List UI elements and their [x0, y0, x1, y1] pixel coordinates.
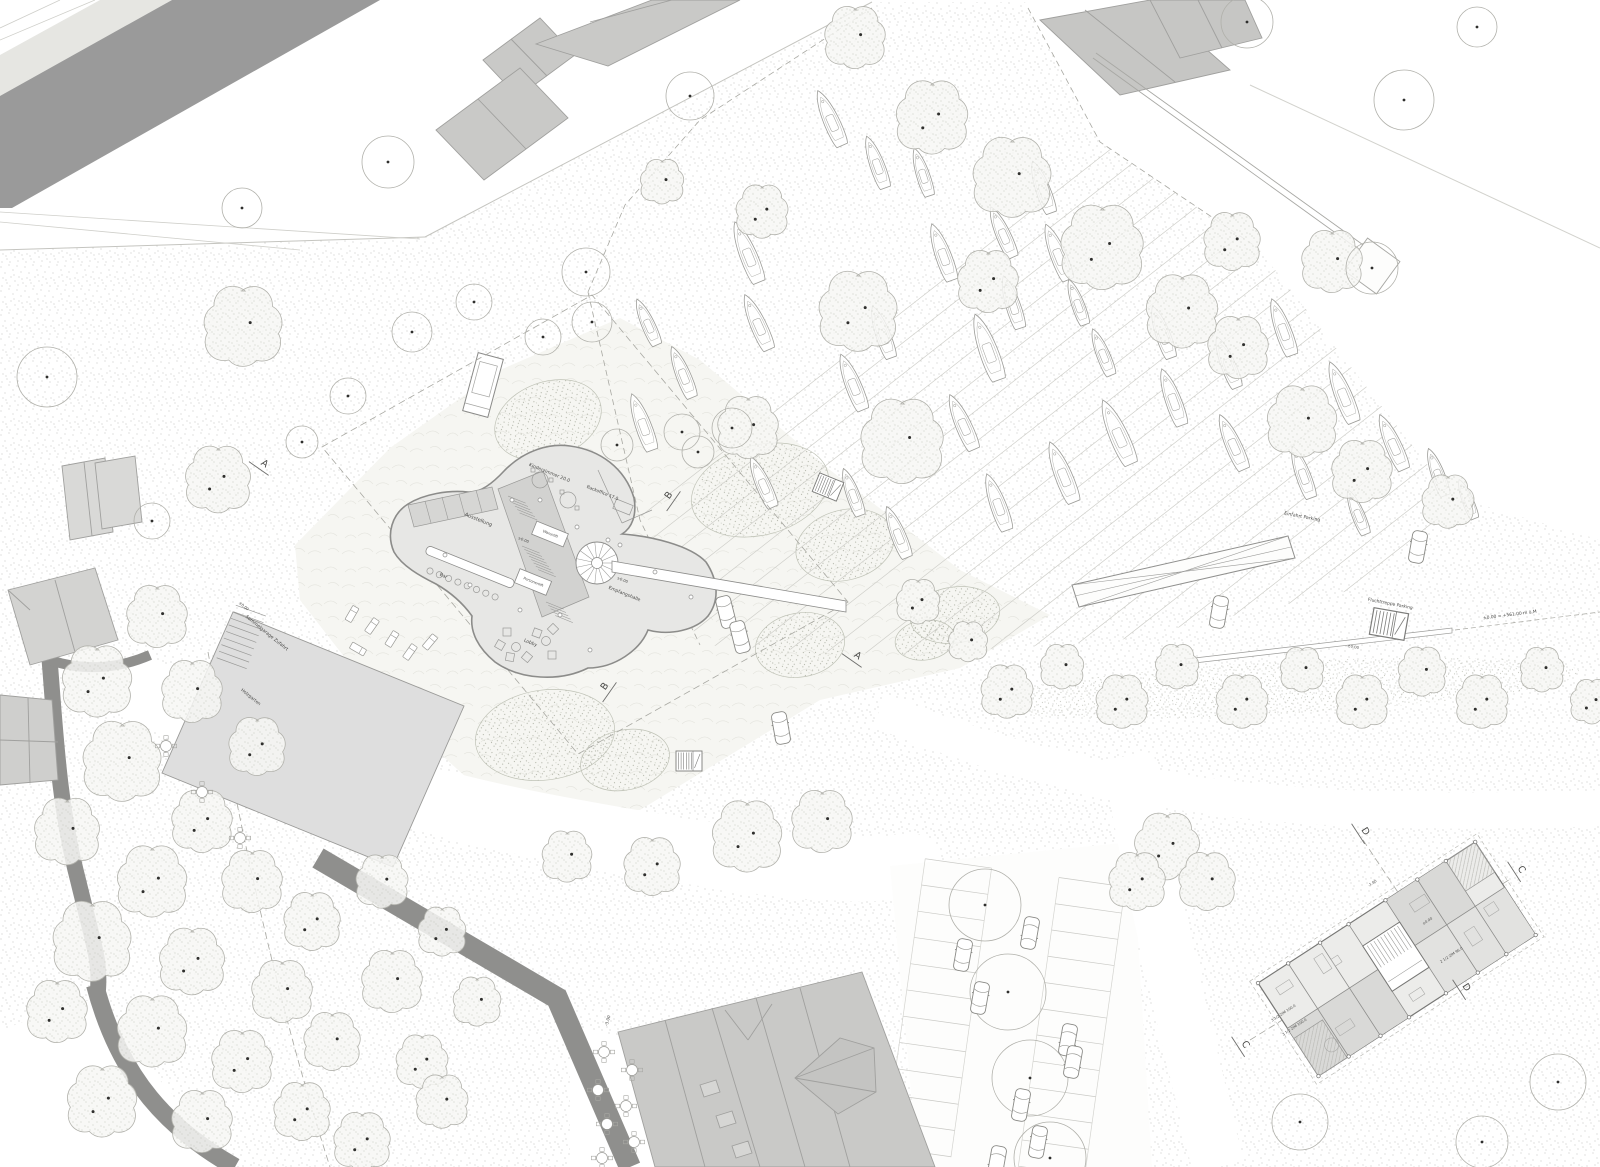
- tree-trunk-dot: [643, 873, 646, 876]
- tree-canopy: [981, 665, 1033, 718]
- tree-canopy: [949, 622, 988, 662]
- tree-trunk-dot: [102, 677, 105, 680]
- tree-trunk-dot: [182, 970, 185, 973]
- tree-trunk-dot: [385, 878, 388, 881]
- tree-canopy: [1155, 644, 1198, 689]
- tree-trunk-dot: [656, 862, 659, 865]
- tree-canopy: [1040, 644, 1083, 689]
- column: [575, 525, 579, 529]
- tree-trunk-dot: [1246, 21, 1249, 24]
- tree-trunk-dot: [752, 832, 755, 835]
- tree-trunk-dot: [301, 441, 304, 444]
- tree-canopy: [284, 892, 340, 950]
- tree-trunk-dot: [223, 475, 226, 478]
- tree-canopy: [973, 137, 1051, 217]
- tree-trunk-dot: [249, 321, 252, 324]
- tree-trunk-dot: [1065, 663, 1068, 666]
- tree-canopy: [160, 928, 225, 995]
- tree-trunk-dot: [1180, 663, 1183, 666]
- site-plan-svg: Kinderzimmer 20.0Backoffice 17.0Ausstell…: [0, 0, 1600, 1167]
- tree-canopy: [1204, 212, 1260, 270]
- tree-trunk-dot: [316, 917, 319, 920]
- tree-trunk-dot: [1229, 355, 1232, 358]
- tree-trunk-dot: [1474, 708, 1477, 711]
- tree-trunk-dot: [970, 638, 973, 641]
- tree-outline: [222, 188, 262, 228]
- tree-canopy: [819, 271, 897, 351]
- table-top: [235, 833, 246, 844]
- tree-trunk-dot: [999, 698, 1002, 701]
- tree-canopy: [1208, 316, 1268, 378]
- tree-trunk-dot: [754, 218, 757, 221]
- tree-canopy: [83, 721, 161, 801]
- tree-canopy: [1179, 852, 1235, 910]
- tree-trunk-dot: [261, 742, 264, 745]
- tree-trunk-dot: [1049, 1157, 1052, 1160]
- tree-trunk-dot: [411, 331, 414, 334]
- tree-trunk-dot: [353, 1148, 356, 1151]
- tree-trunk-dot: [1299, 1121, 1302, 1124]
- tree-trunk-dot: [752, 423, 755, 426]
- tree-trunk-dot: [1481, 1141, 1484, 1144]
- tree-trunk-dot: [142, 890, 145, 893]
- tree-canopy: [418, 907, 466, 956]
- building-southwest: [0, 695, 58, 785]
- tree-canopy: [736, 185, 788, 238]
- tree-trunk-dot: [366, 1137, 369, 1140]
- tree-canopy: [27, 980, 87, 1042]
- tree-canopy: [117, 996, 186, 1067]
- tree-trunk-dot: [98, 936, 101, 939]
- tree-canopy: [792, 790, 852, 852]
- tree-trunk-dot: [1557, 1081, 1560, 1084]
- tree-canopy: [204, 286, 282, 366]
- tree-trunk-dot: [1211, 877, 1214, 880]
- tree-trunk-dot: [434, 937, 437, 940]
- tree-canopy: [1109, 852, 1165, 910]
- tree-canopy: [356, 855, 408, 908]
- column: [689, 595, 693, 599]
- tree-trunk-dot: [1125, 698, 1128, 701]
- stair-icon: [676, 751, 702, 771]
- table-top: [602, 1119, 613, 1130]
- tree-trunk-dot: [92, 1110, 95, 1113]
- tree-trunk-dot: [921, 598, 924, 601]
- tree-canopy: [186, 446, 251, 513]
- tree-trunk-dot: [480, 998, 483, 1001]
- tree-trunk-dot: [542, 336, 545, 339]
- tree-canopy: [1061, 205, 1143, 290]
- tree-trunk-dot: [1305, 666, 1308, 669]
- tree-canopy: [958, 250, 1018, 312]
- tree-canopy: [172, 790, 232, 852]
- tree-canopy: [1096, 675, 1148, 728]
- tree-trunk-dot: [984, 904, 987, 907]
- tree-trunk-dot: [248, 753, 251, 756]
- tree-trunk-dot: [1114, 708, 1117, 711]
- tree-canopy: [53, 901, 131, 981]
- column: [606, 538, 610, 542]
- tree-trunk-dot: [425, 1058, 428, 1061]
- column: [510, 498, 514, 502]
- tree-trunk-dot: [859, 33, 862, 36]
- tree-trunk-dot: [1545, 666, 1548, 669]
- spiral-core: [592, 558, 603, 569]
- tree-trunk-dot: [731, 427, 734, 430]
- tree-trunk-dot: [233, 1069, 236, 1072]
- tree-canopy: [1398, 647, 1446, 696]
- tree-trunk-dot: [157, 1027, 160, 1030]
- tree-canopy: [1336, 675, 1388, 728]
- tree-trunk-dot: [387, 161, 390, 164]
- tree-trunk-dot: [1242, 343, 1245, 346]
- tree-trunk-dot: [246, 1057, 249, 1060]
- column: [538, 498, 542, 502]
- tree-trunk-dot: [1595, 698, 1598, 701]
- tree-canopy: [1267, 386, 1336, 457]
- tree-trunk-dot: [681, 431, 684, 434]
- tree-canopy: [229, 717, 285, 775]
- tree-trunk-dot: [1090, 258, 1093, 261]
- tree-trunk-dot: [908, 436, 911, 439]
- tree-trunk-dot: [157, 877, 160, 880]
- tree-trunk-dot: [665, 178, 668, 181]
- tree-trunk-dot: [1476, 26, 1479, 29]
- tree-trunk-dot: [396, 977, 399, 980]
- tree-trunk-dot: [1485, 698, 1488, 701]
- tree-trunk-dot: [846, 321, 849, 324]
- tree-canopy: [1422, 475, 1474, 528]
- table-top: [627, 1065, 638, 1076]
- tree-trunk-dot: [585, 271, 588, 274]
- tree-trunk-dot: [826, 817, 829, 820]
- tree-trunk-dot: [979, 289, 982, 292]
- tree-trunk-dot: [473, 301, 476, 304]
- tree-trunk-dot: [206, 817, 209, 820]
- tree-trunk-dot: [1029, 1077, 1032, 1080]
- tree-canopy: [1456, 675, 1508, 728]
- tree-trunk-dot: [689, 95, 692, 98]
- tree-canopy: [334, 1112, 390, 1167]
- table-top: [629, 1137, 640, 1148]
- tree-trunk-dot: [196, 687, 199, 690]
- tree-trunk-dot: [1157, 855, 1160, 858]
- tree-trunk-dot: [1365, 698, 1368, 701]
- tree-canopy: [162, 660, 222, 722]
- tree-trunk-dot: [72, 827, 75, 830]
- tree-trunk-dot: [46, 376, 49, 379]
- tree-trunk-dot: [1307, 417, 1310, 420]
- tree-canopy: [896, 81, 967, 154]
- tree-trunk-dot: [48, 1019, 51, 1022]
- tree-canopy: [1302, 230, 1362, 292]
- table-top: [593, 1085, 604, 1096]
- tree-canopy: [1216, 675, 1268, 728]
- tree-trunk-dot: [1336, 257, 1339, 260]
- tree-trunk-dot: [1234, 708, 1237, 711]
- tree-trunk-dot: [414, 1068, 417, 1071]
- tree-trunk-dot: [1371, 267, 1374, 270]
- tree-trunk-dot: [1018, 172, 1021, 175]
- tree-canopy: [222, 850, 282, 912]
- table-top: [621, 1101, 632, 1112]
- tree-trunk-dot: [921, 126, 924, 129]
- tree-trunk-dot: [241, 207, 244, 210]
- tree-trunk-dot: [193, 829, 196, 832]
- tree-trunk-dot: [107, 1097, 110, 1100]
- tree-canopy: [712, 801, 781, 872]
- tree-trunk-dot: [445, 1098, 448, 1101]
- tree-trunk-dot: [1010, 688, 1013, 691]
- table-top: [599, 1047, 610, 1058]
- tree-trunk-dot: [1236, 237, 1239, 240]
- tree-trunk-dot: [306, 1107, 309, 1110]
- tree-trunk-dot: [197, 957, 200, 960]
- tree-trunk-dot: [1223, 248, 1226, 251]
- tree-trunk-dot: [208, 488, 211, 491]
- tree-canopy: [172, 1090, 232, 1152]
- tree-canopy: [252, 960, 312, 1022]
- tree-trunk-dot: [87, 690, 90, 693]
- tree-trunk-dot: [937, 113, 940, 116]
- table-top: [197, 787, 208, 798]
- tree-trunk-dot: [128, 756, 131, 759]
- column: [588, 648, 592, 652]
- column: [443, 553, 447, 557]
- tree-trunk-dot: [303, 928, 306, 931]
- tree-canopy: [416, 1075, 468, 1128]
- tree-trunk-dot: [992, 277, 995, 280]
- tree-trunk-dot: [591, 321, 594, 324]
- tree-trunk-dot: [293, 1118, 296, 1121]
- tree-canopy: [1520, 647, 1563, 692]
- tree-canopy: [212, 1030, 272, 1092]
- tree-trunk-dot: [737, 845, 740, 848]
- tree-trunk-dot: [61, 1007, 64, 1010]
- tree-outline: [362, 136, 414, 188]
- tree-canopy: [274, 1082, 330, 1140]
- site-plan-canvas: Kinderzimmer 20.0Backoffice 17.0Ausstell…: [0, 0, 1600, 1167]
- tree-trunk-dot: [1353, 479, 1356, 482]
- tree-trunk-dot: [286, 987, 289, 990]
- tree-trunk-dot: [256, 877, 259, 880]
- column: [468, 583, 472, 587]
- tree-trunk-dot: [697, 451, 700, 454]
- tree-trunk-dot: [1354, 708, 1357, 711]
- tree-canopy: [640, 159, 683, 204]
- table-top: [161, 741, 172, 752]
- tree-trunk-dot: [1007, 991, 1010, 994]
- tree-canopy: [35, 798, 100, 865]
- tree-canopy: [1280, 647, 1323, 692]
- tree-trunk-dot: [1425, 668, 1428, 671]
- tree-trunk-dot: [765, 208, 768, 211]
- tree-trunk-dot: [336, 1037, 339, 1040]
- tree-canopy: [362, 950, 422, 1012]
- tree-canopy: [624, 837, 680, 895]
- tree-trunk-dot: [1108, 242, 1111, 245]
- tree-canopy: [825, 6, 885, 68]
- tree-trunk-dot: [347, 395, 350, 398]
- tree-trunk-dot: [1451, 498, 1454, 501]
- tree-canopy: [453, 977, 501, 1026]
- column: [653, 570, 657, 574]
- tree-trunk-dot: [1366, 467, 1369, 470]
- column: [518, 608, 522, 612]
- tree-trunk-dot: [570, 853, 573, 856]
- tree-canopy: [718, 396, 778, 458]
- stair-icon: [1369, 608, 1408, 641]
- tree-canopy: [117, 846, 186, 917]
- tree-trunk-dot: [1128, 888, 1131, 891]
- tree-trunk-dot: [161, 612, 164, 615]
- tree-trunk-dot: [911, 607, 914, 610]
- tree-canopy: [542, 831, 592, 882]
- tree-canopy: [1332, 440, 1392, 502]
- tree-trunk-dot: [445, 928, 448, 931]
- tree-trunk-dot: [616, 444, 619, 447]
- column: [618, 543, 622, 547]
- tree-trunk-dot: [864, 306, 867, 309]
- tree-canopy: [896, 579, 939, 624]
- tree-canopy: [62, 646, 131, 717]
- column: [558, 613, 562, 617]
- tree-trunk-dot: [1172, 842, 1175, 845]
- tree-canopy: [861, 399, 943, 484]
- tree-canopy: [127, 585, 187, 647]
- tree-trunk-dot: [1141, 877, 1144, 880]
- tree-canopy: [67, 1066, 136, 1137]
- table-top: [597, 1153, 608, 1164]
- tree-trunk-dot: [1245, 698, 1248, 701]
- tree-canopy: [1146, 275, 1217, 348]
- building-north-2: [436, 68, 568, 180]
- tree-canopy: [304, 1012, 360, 1070]
- tree-trunk-dot: [151, 520, 154, 523]
- tree-trunk-dot: [1187, 307, 1190, 310]
- tree-trunk-dot: [206, 1117, 209, 1120]
- tree-trunk-dot: [1585, 707, 1588, 710]
- tree-trunk-dot: [1403, 99, 1406, 102]
